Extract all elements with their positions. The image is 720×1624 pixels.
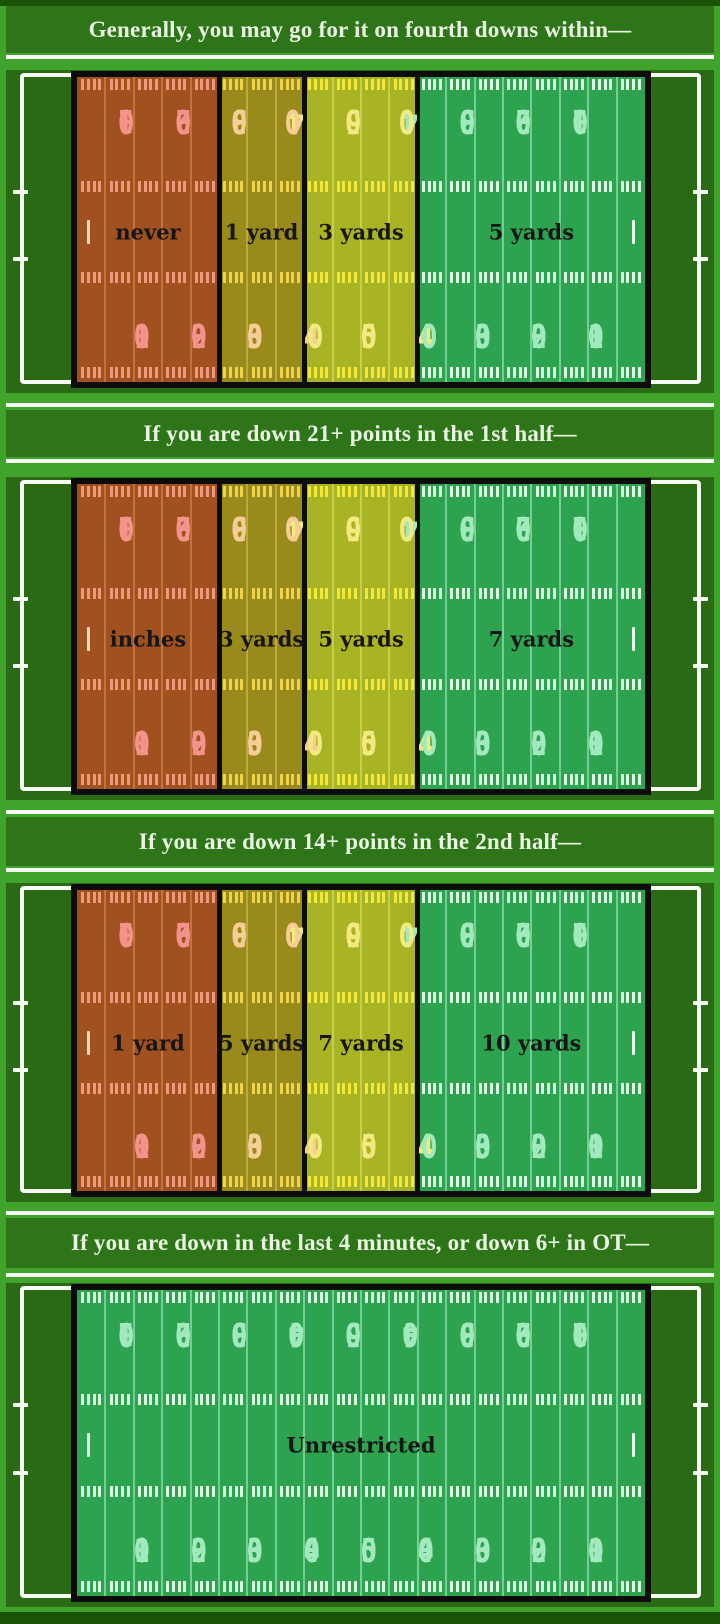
hash-tick (308, 1292, 311, 1303)
hash-tick (536, 588, 539, 599)
sideline-tick-left (13, 257, 28, 261)
hash-tick (354, 367, 357, 378)
zone-label: 1 yard (225, 220, 298, 245)
hash-tick (280, 367, 283, 378)
hash-tick (604, 486, 607, 497)
yard-line (104, 1290, 106, 1596)
hash-tick (263, 1083, 266, 1094)
hash-tick (127, 774, 130, 785)
hash-tick (348, 1176, 351, 1187)
hash-tick (553, 588, 556, 599)
hash-tick (450, 679, 453, 690)
hash-tick (524, 679, 527, 690)
hash-tick (337, 992, 340, 1003)
hash-tick (394, 1083, 397, 1094)
hash-tick (507, 181, 510, 192)
hash-tick (93, 1083, 96, 1094)
hash-tick (439, 486, 442, 497)
hash-tick (479, 992, 482, 1003)
hash-tick (394, 992, 397, 1003)
hash-tick (314, 892, 317, 903)
title-divider-line (6, 459, 714, 463)
hash-tick (354, 181, 357, 192)
hash-tick (98, 1176, 101, 1187)
hash-tick (252, 892, 255, 903)
hash-tick (348, 1083, 351, 1094)
hash-tick (570, 774, 573, 785)
hash-tick (411, 272, 414, 283)
hash-tick (394, 367, 397, 378)
hash-tick (286, 1176, 289, 1187)
hash-tick (212, 486, 215, 497)
hash-tick (93, 181, 96, 192)
hash-tick (382, 1486, 385, 1497)
hash-tick (598, 1486, 601, 1497)
hash-tick (405, 1581, 408, 1592)
yard-number-digit: 0 (401, 1319, 417, 1352)
hash-tick (348, 486, 351, 497)
hash-tick (280, 892, 283, 903)
hash-tick (297, 1486, 300, 1497)
hash-tick (433, 272, 436, 283)
hash-tick (342, 1394, 345, 1405)
hash-tick (399, 679, 402, 690)
hash-tick (115, 774, 118, 785)
hash-tick (166, 679, 169, 690)
hash-tick (632, 181, 635, 192)
hash-tick (507, 1083, 510, 1094)
hash-tick (149, 992, 152, 1003)
direction-dash (421, 334, 427, 338)
hash-tick (541, 774, 544, 785)
hash-tick (638, 79, 641, 90)
hash-tick (604, 1083, 607, 1094)
hash-tick (342, 892, 345, 903)
hash-tick (144, 679, 147, 690)
direction-dash (125, 933, 131, 937)
hash-tick (609, 181, 612, 192)
hash-tick (598, 181, 601, 192)
hash-tick (581, 1581, 584, 1592)
hash-tick (110, 679, 113, 690)
sideline-tick-right (693, 1403, 708, 1407)
hash-tick (382, 181, 385, 192)
hash-tick (439, 588, 442, 599)
hash-tick (428, 367, 431, 378)
hash-tick (626, 79, 629, 90)
hash-tick (377, 1486, 380, 1497)
hash-tick (507, 1486, 510, 1497)
hash-tick (632, 774, 635, 785)
hash-tick (127, 1176, 130, 1187)
hash-tick (507, 486, 510, 497)
hash-tick (564, 1292, 567, 1303)
hash-tick (450, 1176, 453, 1187)
hash-tick (581, 486, 584, 497)
hash-tick (149, 181, 152, 192)
hash-tick (121, 1581, 124, 1592)
hash-tick (564, 272, 567, 283)
hash-tick (626, 1292, 629, 1303)
hash-tick (484, 1581, 487, 1592)
direction-dash (125, 1333, 131, 1337)
hash-tick (110, 992, 113, 1003)
hash-tick (223, 1486, 226, 1497)
hash-tick (98, 1581, 101, 1592)
hash-tick (422, 992, 425, 1003)
hash-tick (524, 272, 527, 283)
hash-tick (263, 79, 266, 90)
hash-tick (638, 679, 641, 690)
hash-tick (536, 774, 539, 785)
hash-tick (536, 1581, 539, 1592)
hash-tick (382, 1176, 385, 1187)
hash-tick (405, 679, 408, 690)
hash-tick (257, 272, 260, 283)
hash-tick (212, 1083, 215, 1094)
hash-tick (484, 892, 487, 903)
hash-tick (314, 774, 317, 785)
hash-tick (621, 679, 624, 690)
hash-tick (564, 367, 567, 378)
hash-tick (263, 892, 266, 903)
hash-tick (467, 272, 470, 283)
hash-tick (439, 892, 442, 903)
hash-tick (308, 272, 311, 283)
hash-tick (206, 892, 209, 903)
hash-tick (235, 367, 238, 378)
panel-title-bar: If you are down 21+ points in the 1st ha… (6, 410, 714, 457)
hash-tick (547, 486, 550, 497)
hash-tick (286, 992, 289, 1003)
zone-label: Unrestricted (286, 1433, 435, 1458)
hash-tick (223, 992, 226, 1003)
hash-tick (348, 1394, 351, 1405)
direction-dash (295, 933, 301, 937)
hash-tick (98, 1292, 101, 1303)
hash-tick (110, 367, 113, 378)
direction-dash (239, 527, 245, 531)
hash-tick (263, 181, 266, 192)
hash-tick (507, 892, 510, 903)
hash-tick (121, 892, 124, 903)
hash-tick (581, 1176, 584, 1187)
hash-tick (178, 272, 181, 283)
hash-tick (81, 181, 84, 192)
hash-tick (632, 588, 635, 599)
hash-tick (479, 181, 482, 192)
hash-tick (638, 367, 641, 378)
hash-tick (507, 1581, 510, 1592)
hash-tick (257, 1176, 260, 1187)
hash-tick (490, 181, 493, 192)
hash-tick (314, 181, 317, 192)
hash-tick (462, 1581, 465, 1592)
hash-tick (592, 892, 595, 903)
hash-tick (598, 1394, 601, 1405)
hash-tick (342, 486, 345, 497)
hash-tick (536, 892, 539, 903)
hash-tick (519, 486, 522, 497)
hash-tick (524, 79, 527, 90)
hash-tick (604, 1394, 607, 1405)
hash-tick (144, 367, 147, 378)
hash-tick (127, 79, 130, 90)
hash-tick (257, 181, 260, 192)
hash-tick (155, 892, 158, 903)
hash-tick (638, 1292, 641, 1303)
hash-tick (127, 588, 130, 599)
hash-tick (342, 588, 345, 599)
hash-tick (377, 272, 380, 283)
hash-tick (183, 774, 186, 785)
hash-tick (575, 367, 578, 378)
hash-tick (93, 272, 96, 283)
hash-tick (138, 367, 141, 378)
hash-tick (257, 679, 260, 690)
hash-tick (422, 79, 425, 90)
hash-tick (98, 367, 101, 378)
yard-line (218, 1290, 220, 1596)
yard-number-digit: 0 (247, 320, 263, 353)
hash-tick (592, 1581, 595, 1592)
hash-tick (121, 774, 124, 785)
hash-tick (212, 1394, 215, 1405)
hash-tick (621, 1486, 624, 1497)
hash-tick (286, 272, 289, 283)
hash-tick (223, 1083, 226, 1094)
hash-tick (149, 588, 152, 599)
hash-tick (433, 486, 436, 497)
hash-tick (490, 367, 493, 378)
hash-tick (507, 992, 510, 1003)
hash-tick (183, 892, 186, 903)
hash-tick (155, 1292, 158, 1303)
hash-tick (575, 1394, 578, 1405)
hash-tick (280, 486, 283, 497)
hash-tick (308, 992, 311, 1003)
hash-tick (269, 1083, 272, 1094)
hash-tick (496, 679, 499, 690)
hash-tick (87, 1083, 90, 1094)
hash-tick (325, 1486, 328, 1497)
hash-tick (575, 1292, 578, 1303)
hash-tick (98, 1486, 101, 1497)
hash-tick (399, 1581, 402, 1592)
hash-tick (553, 774, 556, 785)
hash-tick (382, 892, 385, 903)
hash-tick (325, 79, 328, 90)
hash-tick (422, 1486, 425, 1497)
hash-tick (371, 679, 374, 690)
hash-tick (178, 1394, 181, 1405)
hash-tick (348, 774, 351, 785)
hash-tick (337, 1083, 340, 1094)
hash-tick (621, 1581, 624, 1592)
hash-tick (524, 1486, 527, 1497)
zone-label: 7 yards (489, 627, 574, 652)
hash-tick (144, 1083, 147, 1094)
hash-tick (291, 774, 294, 785)
hash-tick (235, 1176, 238, 1187)
hash-tick (570, 79, 573, 90)
direction-dash (239, 120, 245, 124)
hash-tick (507, 1176, 510, 1187)
hash-tick (183, 181, 186, 192)
hash-tick (456, 892, 459, 903)
hash-tick (121, 992, 124, 1003)
goal-line-tick (87, 220, 90, 244)
hash-tick (467, 1394, 470, 1405)
hash-tick (507, 1394, 510, 1405)
hash-tick (365, 992, 368, 1003)
hash-tick (462, 1083, 465, 1094)
hash-tick (496, 892, 499, 903)
hash-tick (581, 1394, 584, 1405)
hash-tick (325, 1292, 328, 1303)
hash-tick (598, 1176, 601, 1187)
yard-line (161, 1290, 163, 1596)
hash-tick (269, 588, 272, 599)
hash-tick (325, 1083, 328, 1094)
hash-tick (609, 679, 612, 690)
hash-tick (144, 181, 147, 192)
hash-tick (155, 367, 158, 378)
hash-tick (280, 1292, 283, 1303)
zone-label: 10 yards (481, 1031, 581, 1056)
hash-tick (598, 79, 601, 90)
hash-tick (609, 1292, 612, 1303)
hash-tick (229, 679, 232, 690)
hash-tick (235, 486, 238, 497)
hash-tick (342, 774, 345, 785)
hash-tick (314, 1486, 317, 1497)
hash-tick (297, 992, 300, 1003)
hash-tick (536, 181, 539, 192)
direction-dash (534, 741, 540, 745)
hash-tick (456, 181, 459, 192)
hash-tick (536, 1292, 539, 1303)
yard-number-digit: 0 (515, 919, 531, 952)
hash-tick (354, 774, 357, 785)
hash-tick (269, 1394, 272, 1405)
hash-tick (342, 272, 345, 283)
hash-tick (127, 367, 130, 378)
yard-number-digit: 0 (458, 513, 474, 546)
hash-tick (581, 1486, 584, 1497)
hash-tick (223, 79, 226, 90)
hash-tick (592, 1486, 595, 1497)
hash-tick (382, 367, 385, 378)
yard-number-digit: 0 (361, 1130, 377, 1163)
yard-line (104, 77, 106, 382)
hash-tick (286, 181, 289, 192)
hash-tick (263, 774, 266, 785)
hash-tick (81, 1292, 84, 1303)
hash-tick (121, 1394, 124, 1405)
hash-tick (399, 79, 402, 90)
hash-tick (547, 774, 550, 785)
hash-tick (308, 1176, 311, 1187)
hash-tick (269, 1581, 272, 1592)
hash-tick (348, 1581, 351, 1592)
hash-tick (575, 1176, 578, 1187)
hash-tick (212, 79, 215, 90)
hash-tick (178, 1581, 181, 1592)
hash-tick (467, 588, 470, 599)
hash-tick (484, 992, 487, 1003)
hash-tick (564, 774, 567, 785)
hash-tick (87, 774, 90, 785)
hash-tick (252, 1292, 255, 1303)
hash-tick (592, 992, 595, 1003)
hash-tick (337, 1486, 340, 1497)
hash-tick (263, 1292, 266, 1303)
hash-tick (212, 892, 215, 903)
hash-tick (484, 367, 487, 378)
hash-tick (149, 892, 152, 903)
hash-tick (235, 272, 238, 283)
sideline-tick-left (13, 597, 28, 601)
hash-tick (200, 992, 203, 1003)
hash-tick (172, 679, 175, 690)
hash-tick (519, 679, 522, 690)
hash-tick (632, 992, 635, 1003)
hash-tick (155, 679, 158, 690)
direction-dash (421, 741, 427, 745)
yard-number-digit: 0 (247, 1130, 263, 1163)
hash-tick (592, 272, 595, 283)
hash-tick (286, 588, 289, 599)
hash-tick (626, 272, 629, 283)
hash-tick (541, 486, 544, 497)
hash-tick (399, 1394, 402, 1405)
hash-tick (195, 1083, 198, 1094)
hash-tick (257, 1083, 260, 1094)
hash-tick (604, 272, 607, 283)
hash-tick (638, 588, 641, 599)
hash-tick (632, 272, 635, 283)
hash-tick (166, 774, 169, 785)
hash-tick (394, 1394, 397, 1405)
hash-tick (632, 367, 635, 378)
hash-tick (371, 1083, 374, 1094)
hash-tick (462, 1394, 465, 1405)
hash-tick (575, 992, 578, 1003)
hash-tick (337, 367, 340, 378)
yard-number-digit: 0 (345, 919, 361, 952)
title-divider-line (6, 1211, 714, 1215)
hash-tick (200, 181, 203, 192)
yard-number-digit: 0 (134, 727, 150, 760)
hash-tick (110, 1292, 113, 1303)
hash-tick (138, 1292, 141, 1303)
hash-tick (269, 774, 272, 785)
yard-number-digit: 0 (308, 1130, 324, 1163)
hash-tick (553, 679, 556, 690)
yard-line (559, 1290, 561, 1596)
hash-tick (183, 1292, 186, 1303)
hash-tick (513, 486, 516, 497)
hash-tick (371, 181, 374, 192)
hash-tick (377, 1083, 380, 1094)
panel-title: If you are down in the last 4 minutes, o… (71, 1230, 649, 1256)
panel-title: Generally, you may go for it on fourth d… (89, 17, 632, 43)
hash-tick (297, 1176, 300, 1187)
hash-tick (212, 588, 215, 599)
hash-tick (155, 774, 158, 785)
hash-tick (138, 1486, 141, 1497)
